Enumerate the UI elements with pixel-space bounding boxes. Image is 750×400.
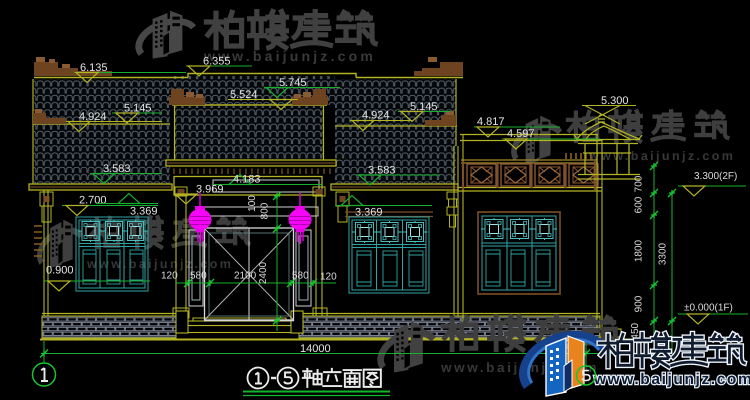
- svg-text:www.baijunjz.com: www.baijunjz.com: [593, 371, 750, 388]
- svg-text:2100: 2100: [234, 271, 257, 282]
- svg-text:5.745: 5.745: [279, 77, 307, 89]
- svg-text:580: 580: [292, 271, 309, 282]
- svg-text:580: 580: [190, 271, 207, 282]
- svg-text:4.597: 4.597: [507, 128, 535, 140]
- svg-text:5.300: 5.300: [601, 95, 629, 107]
- svg-text:www.baijunjz.com: www.baijunjz.com: [588, 149, 735, 163]
- svg-text:900: 900: [634, 295, 645, 312]
- svg-text:4.924: 4.924: [362, 110, 390, 122]
- svg-text:4.817: 4.817: [477, 116, 505, 128]
- svg-text:2400: 2400: [258, 261, 269, 284]
- svg-text:3.969: 3.969: [196, 184, 224, 196]
- svg-text:4.924: 4.924: [79, 111, 107, 123]
- svg-text:700: 700: [634, 175, 645, 192]
- svg-text:0.900: 0.900: [46, 265, 74, 277]
- svg-text:3.369: 3.369: [130, 206, 158, 218]
- svg-text:3.300(2F): 3.300(2F): [694, 171, 737, 182]
- svg-text:6.355: 6.355: [203, 56, 231, 68]
- svg-text:600: 600: [634, 196, 645, 213]
- svg-text:3.583: 3.583: [103, 163, 131, 175]
- svg-text:100: 100: [247, 195, 258, 212]
- svg-text:3300: 3300: [658, 242, 669, 265]
- svg-text:5.145: 5.145: [124, 103, 152, 115]
- svg-text:1800: 1800: [634, 239, 645, 262]
- svg-text:3.583: 3.583: [368, 165, 396, 177]
- svg-text:14000: 14000: [300, 343, 331, 355]
- svg-text:5.145: 5.145: [410, 101, 438, 113]
- svg-text:www.baijunjz.com: www.baijunjz.com: [86, 257, 233, 271]
- svg-text:6.135: 6.135: [80, 62, 108, 74]
- svg-text:800: 800: [260, 202, 271, 219]
- svg-text:2.700: 2.700: [79, 195, 107, 207]
- svg-text:5.524: 5.524: [230, 89, 258, 101]
- svg-text:±0.000(1F): ±0.000(1F): [684, 303, 733, 314]
- svg-text:120: 120: [161, 271, 178, 282]
- svg-text:4.183: 4.183: [233, 174, 261, 186]
- svg-text:3.369: 3.369: [355, 207, 383, 219]
- svg-text:120: 120: [320, 272, 337, 283]
